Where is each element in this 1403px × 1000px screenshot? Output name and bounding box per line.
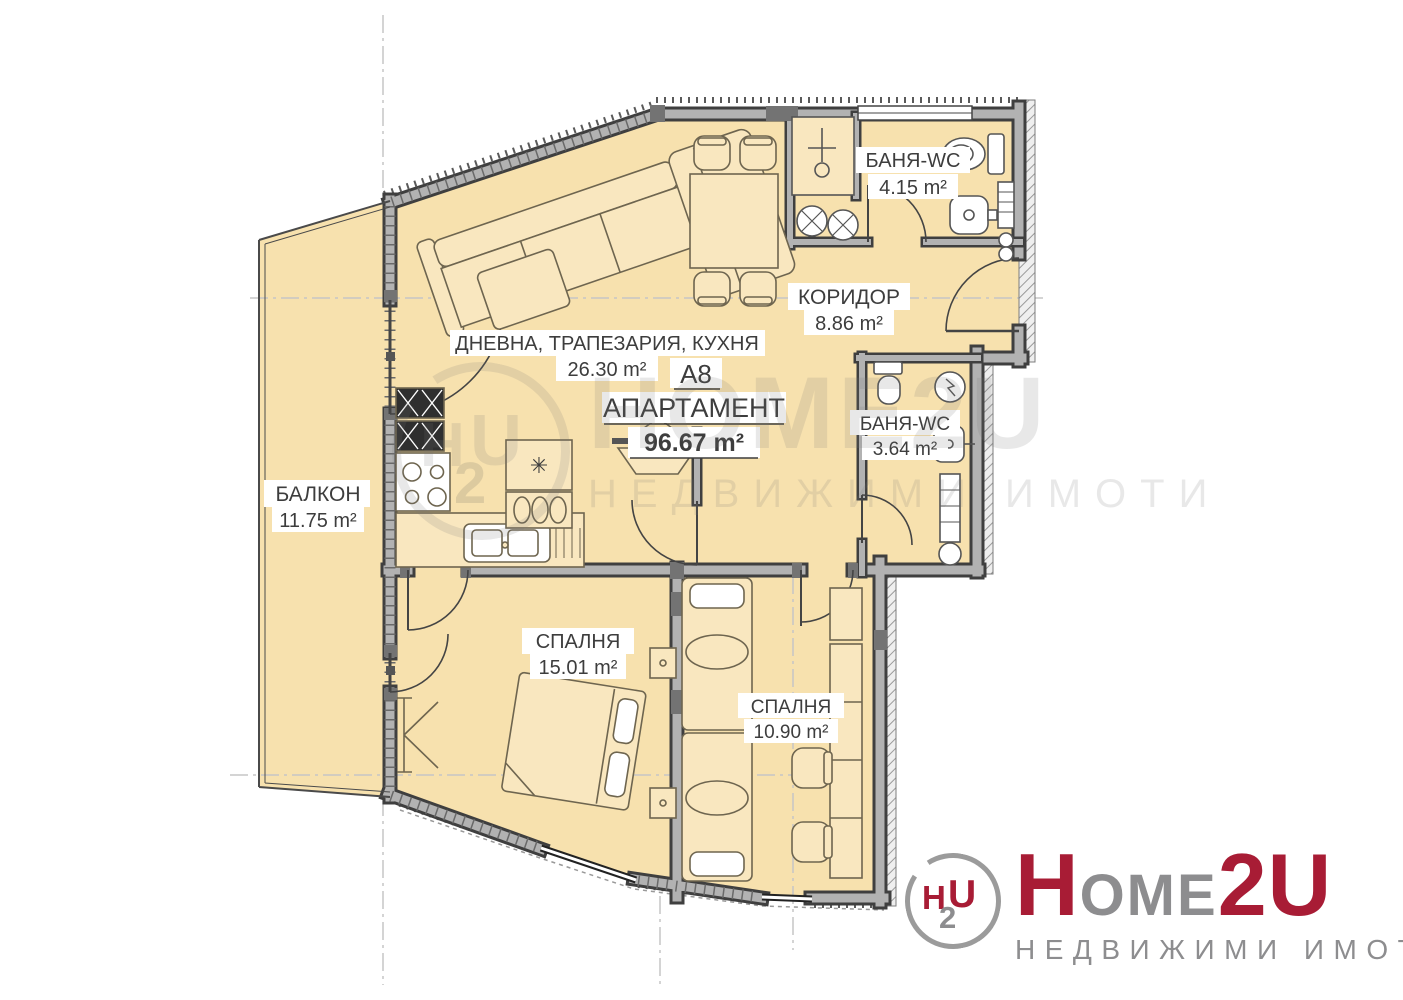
logo-word-ome: OME	[1080, 863, 1218, 928]
double-bed	[501, 672, 646, 811]
room-label-corridor: КОРИДОР	[798, 286, 900, 309]
room-area-bath2: 3.64 m²	[873, 439, 937, 460]
room-label-bath2: БАНЯ-WC	[860, 414, 950, 435]
apartment-id: A8	[680, 359, 712, 389]
apartment-title: АПАРТАМЕНТ	[603, 393, 785, 423]
room-area-living: 26.30 m²	[568, 359, 647, 381]
apartment-area: 96.67 m²	[644, 429, 744, 457]
room-label-bedroom2: СПАЛНЯ	[751, 697, 831, 718]
floor-plan-page: ✳ ДНЕВНА, ТРАПЕЗАРИЯ, КУХНЯ 26.30 m² A8 …	[0, 0, 1403, 1000]
logo-word-2u: 2U	[1218, 835, 1333, 934]
room-area-bath1: 4.15 m²	[879, 177, 947, 199]
single-bed-b	[682, 733, 752, 881]
towel-rail-2	[939, 474, 961, 565]
logo-word-h: H	[1015, 835, 1080, 934]
room-area-bedroom1: 15.01 m²	[539, 657, 618, 679]
fridge-icon: ✳	[530, 453, 548, 478]
shower	[792, 117, 854, 195]
dining-table	[690, 174, 778, 268]
home2u-logo: H U 2 HOME2U НЕДВИЖИМИ ИМОТИ	[905, 845, 1397, 990]
towel-rail-1	[998, 182, 1014, 261]
stove	[396, 453, 450, 511]
logo-wordmark: HOME2U	[1015, 845, 1403, 924]
room-label-balcony: БАЛКОН	[275, 483, 360, 506]
room-label-bath1: БАНЯ-WC	[866, 150, 961, 172]
home2u-emblem-icon: H U 2	[905, 853, 1001, 949]
room-label-living: ДНЕВНА, ТРАПЕЗАРИЯ, КУХНЯ	[455, 333, 759, 355]
room-area-balcony: 11.75 m²	[279, 510, 357, 532]
logo-tagline: НЕДВИЖИМИ ИМОТИ	[1015, 934, 1403, 966]
boiler	[935, 372, 965, 402]
room-area-bedroom2: 10.90 m²	[754, 722, 829, 743]
toilet-2	[874, 362, 902, 404]
room-label-bedroom1: СПАЛНЯ	[536, 631, 621, 653]
room-area-corridor: 8.86 m²	[815, 313, 883, 335]
logo-emblem-2: 2	[939, 900, 956, 936]
